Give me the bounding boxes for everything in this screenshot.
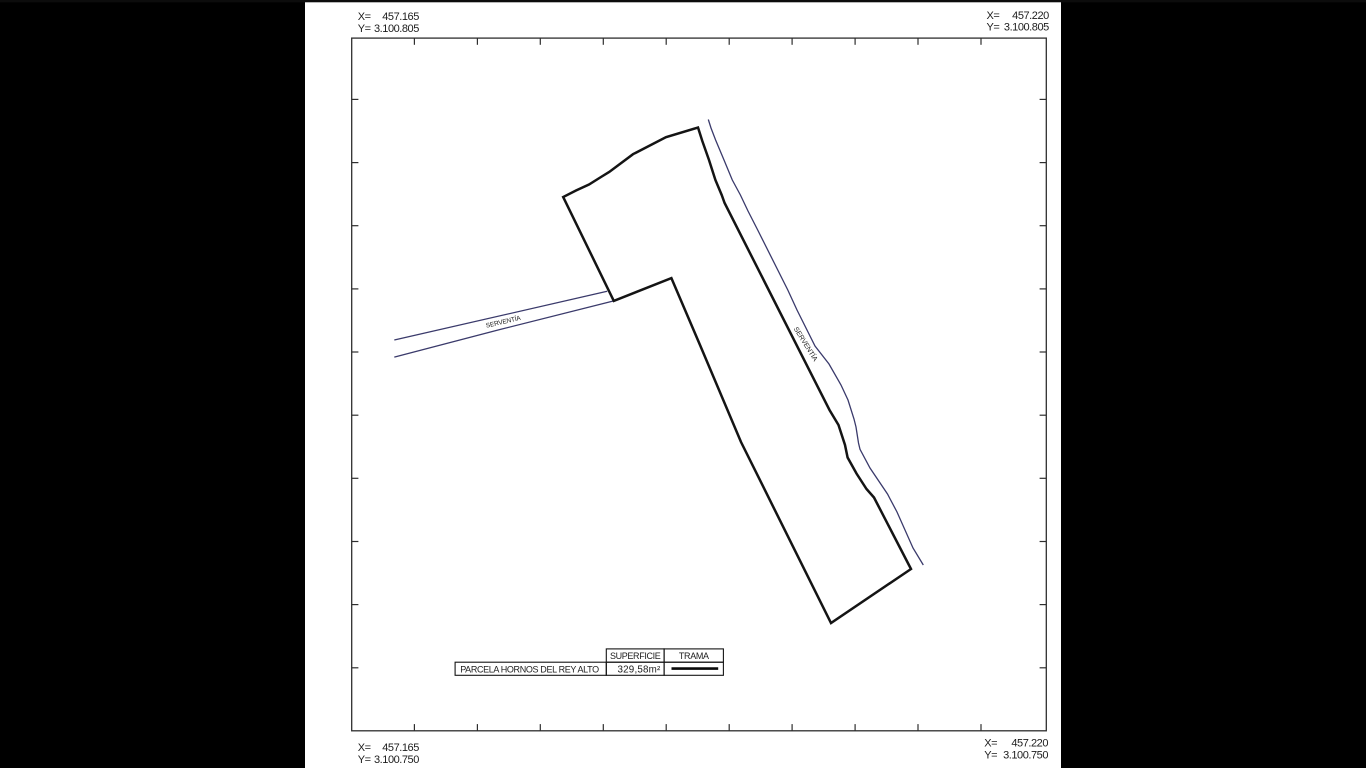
svg-text:X=: X= — [358, 11, 371, 23]
svg-text:X=: X= — [987, 10, 1000, 22]
svg-text:3.100.750: 3.100.750 — [374, 754, 419, 766]
svg-text:TRAMA: TRAMA — [679, 651, 709, 661]
svg-text:3.100.805: 3.100.805 — [374, 23, 419, 35]
svg-text:Y=: Y= — [358, 754, 371, 766]
svg-text:Y=: Y= — [358, 23, 371, 35]
svg-text:457.220: 457.220 — [1011, 738, 1048, 750]
svg-text:457.165: 457.165 — [382, 11, 419, 23]
svg-text:457.220: 457.220 — [1012, 10, 1049, 22]
svg-text:SUPERFICIE: SUPERFICIE — [610, 651, 661, 661]
svg-text:Y=: Y= — [987, 22, 1000, 34]
svg-text:3.100.750: 3.100.750 — [1003, 750, 1048, 762]
svg-text:457.165: 457.165 — [382, 742, 419, 754]
svg-text:PARCELA HORNOS DEL REY ALTO: PARCELA HORNOS DEL REY ALTO — [460, 664, 599, 674]
svg-text:X=: X= — [358, 742, 371, 754]
svg-text:Y=: Y= — [984, 750, 997, 762]
svg-text:329,58m²: 329,58m² — [618, 664, 662, 675]
svg-text:3.100.805: 3.100.805 — [1004, 22, 1049, 34]
svg-text:X=: X= — [984, 738, 997, 750]
